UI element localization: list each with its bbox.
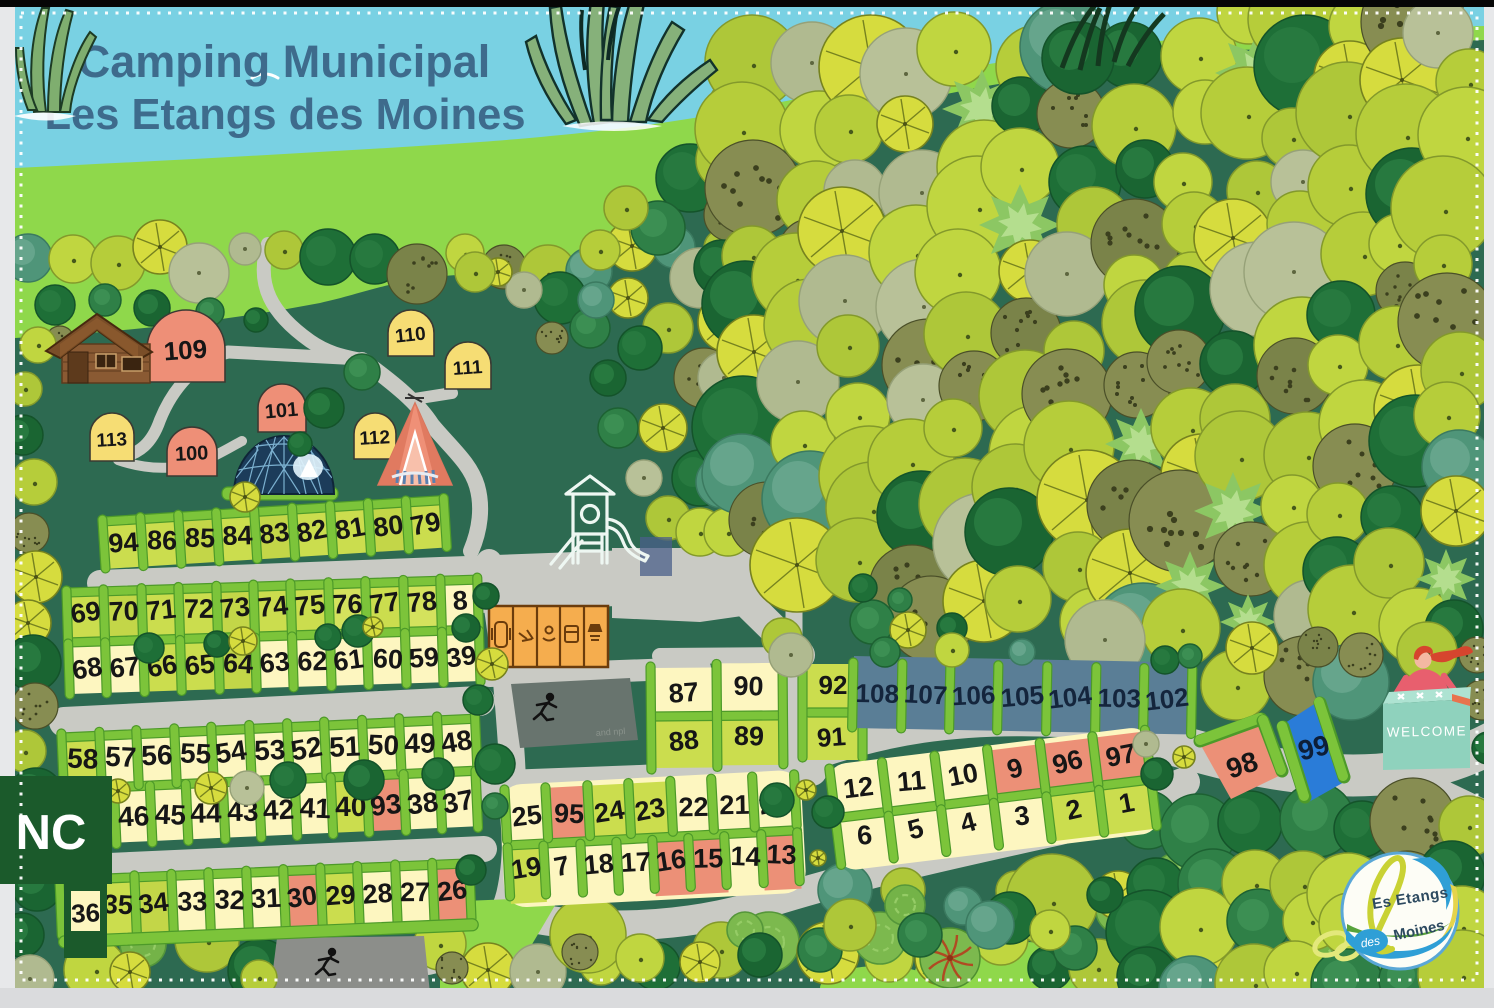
svg-text:72: 72 [184,594,214,624]
svg-text:109: 109 [163,334,208,367]
svg-text:90: 90 [733,671,764,702]
svg-text:68: 68 [70,651,105,686]
svg-text:27: 27 [400,877,430,907]
svg-text:71: 71 [145,594,178,627]
svg-text:39: 39 [444,640,478,674]
svg-text:69: 69 [69,596,103,630]
svg-text:73: 73 [218,591,251,624]
svg-text:21: 21 [719,790,750,821]
svg-text:29: 29 [324,879,356,911]
svg-text:82: 82 [294,513,329,548]
svg-text:31: 31 [250,883,281,914]
svg-text:52: 52 [288,730,324,766]
svg-text:77: 77 [368,586,402,620]
svg-text:51: 51 [328,730,361,762]
svg-text:Camping Municipal: Camping Municipal [78,36,491,87]
svg-text:22: 22 [678,792,709,823]
svg-text:63: 63 [258,646,291,679]
svg-text:56: 56 [141,739,174,771]
svg-text:19: 19 [509,851,543,885]
svg-text:WELCOME: WELCOME [1387,723,1468,739]
svg-text:107: 107 [903,678,948,710]
svg-text:92: 92 [819,670,848,700]
svg-text:101: 101 [264,399,299,424]
svg-text:110: 110 [394,323,427,347]
svg-text:Les Etangs des Moines: Les Etangs des Moines [44,91,525,139]
svg-text:28: 28 [361,878,393,910]
svg-text:34: 34 [137,887,170,920]
svg-text:41: 41 [299,792,331,824]
svg-text:86: 86 [147,525,178,556]
svg-text:91: 91 [816,721,847,753]
svg-text:30: 30 [285,880,319,914]
svg-text:59: 59 [408,642,440,674]
svg-text:38: 38 [405,786,440,820]
svg-text:49: 49 [404,728,435,759]
svg-text:74: 74 [256,590,289,623]
svg-text:46: 46 [117,800,150,832]
svg-text:53: 53 [254,734,287,766]
svg-text:104: 104 [1047,680,1094,715]
svg-text:108: 108 [855,678,899,709]
svg-text:81: 81 [333,511,368,546]
svg-text:62: 62 [297,646,328,677]
svg-text:18: 18 [582,848,615,881]
svg-text:88: 88 [667,724,700,757]
svg-text:36: 36 [70,897,100,928]
svg-text:13: 13 [766,839,797,870]
svg-text:84: 84 [222,520,253,551]
svg-text:11: 11 [896,765,927,797]
svg-text:79: 79 [408,506,443,541]
svg-text:33: 33 [177,886,207,916]
svg-text:15: 15 [693,843,724,874]
svg-text:8: 8 [452,585,469,616]
svg-text:57: 57 [105,741,137,773]
svg-text:83: 83 [258,516,292,550]
svg-text:14: 14 [730,841,761,872]
svg-text:106: 106 [951,679,996,711]
svg-text:17: 17 [620,846,652,878]
svg-text:102: 102 [1144,682,1191,717]
svg-text:24: 24 [592,794,626,828]
svg-text:70: 70 [108,596,139,627]
svg-text:78: 78 [405,585,438,618]
svg-text:87: 87 [667,677,699,709]
svg-text:10: 10 [945,757,980,792]
svg-text:48: 48 [439,724,474,759]
svg-text:54: 54 [213,734,249,769]
svg-text:94: 94 [107,527,139,559]
svg-text:61: 61 [331,643,365,677]
svg-text:50: 50 [367,729,399,761]
svg-text:113: 113 [96,429,128,452]
svg-text:100: 100 [174,442,208,466]
svg-text:105: 105 [999,679,1045,713]
svg-text:NC: NC [16,806,87,860]
svg-text:32: 32 [214,884,245,915]
svg-text:12: 12 [842,771,875,804]
svg-text:55: 55 [180,737,212,769]
svg-text:112: 112 [359,427,391,450]
svg-text:111: 111 [452,357,483,380]
svg-text:45: 45 [154,799,186,831]
svg-text:6: 6 [856,820,874,851]
svg-text:75: 75 [293,589,326,622]
svg-text:25: 25 [510,799,543,832]
svg-text:60: 60 [372,643,404,675]
svg-text:85: 85 [185,523,216,554]
svg-text:23: 23 [632,792,667,827]
svg-text:95: 95 [554,798,585,829]
svg-text:16: 16 [654,843,688,877]
svg-text:and npl: and npl [595,726,625,738]
svg-text:89: 89 [734,721,765,752]
svg-text:103: 103 [1097,683,1141,714]
svg-text:58: 58 [67,742,99,774]
svg-text:80: 80 [371,509,405,543]
